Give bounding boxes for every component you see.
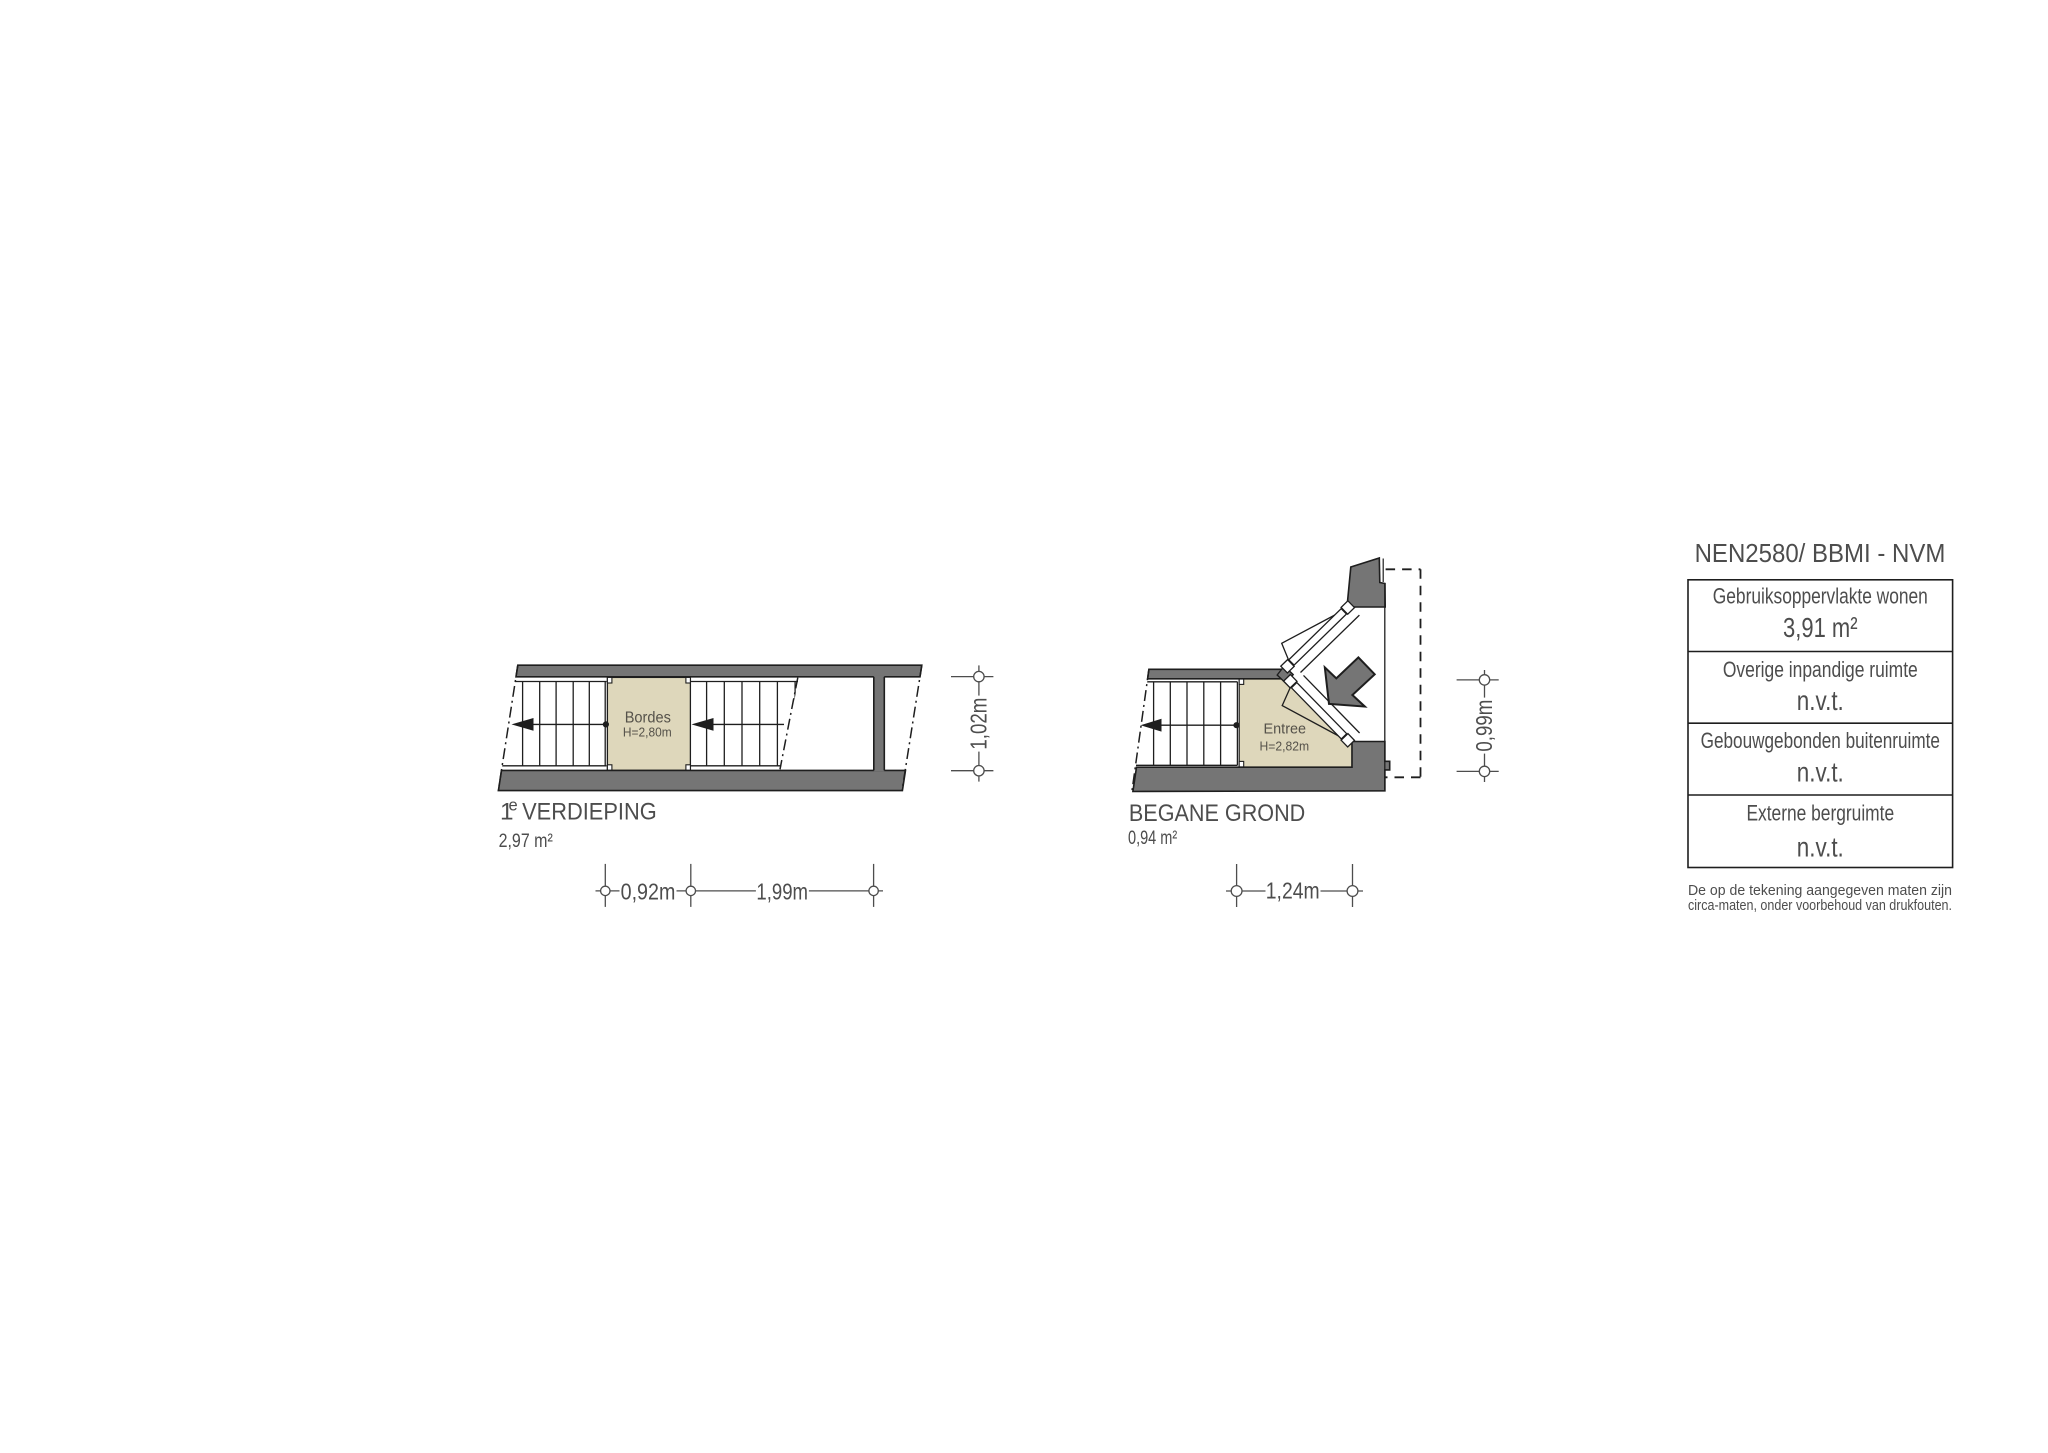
svg-text:0,99m: 0,99m bbox=[1471, 700, 1497, 752]
svg-text:H=2,80m: H=2,80m bbox=[623, 726, 672, 740]
svg-text:1,24m: 1,24m bbox=[1266, 878, 1320, 904]
svg-text:Gebruiksoppervlakte wonen: Gebruiksoppervlakte wonen bbox=[1713, 584, 1928, 609]
svg-text:n.v.t.: n.v.t. bbox=[1797, 685, 1844, 716]
svg-text:1,02m: 1,02m bbox=[965, 698, 991, 750]
svg-text:Entree: Entree bbox=[1264, 721, 1307, 738]
svg-text:3,91 m²: 3,91 m² bbox=[1783, 612, 1858, 643]
svg-text:VERDIEPING: VERDIEPING bbox=[522, 798, 657, 825]
svg-text:circa-maten, onder voorbehoud: circa-maten, onder voorbehoud van drukfo… bbox=[1688, 897, 1952, 914]
svg-text:NEN2580/ BBMI - NVM: NEN2580/ BBMI - NVM bbox=[1695, 538, 1946, 568]
svg-text:0,94 m²: 0,94 m² bbox=[1128, 827, 1178, 849]
svg-text:e: e bbox=[509, 797, 518, 815]
svg-text:Gebouwgebonden buitenruimte: Gebouwgebonden buitenruimte bbox=[1701, 728, 1940, 753]
svg-text:Externe bergruimte: Externe bergruimte bbox=[1746, 800, 1894, 825]
svg-text:BEGANE GROND: BEGANE GROND bbox=[1129, 800, 1305, 827]
svg-text:Bordes: Bordes bbox=[625, 709, 671, 726]
svg-text:n.v.t.: n.v.t. bbox=[1797, 832, 1844, 863]
svg-text:2,97 m²: 2,97 m² bbox=[499, 830, 554, 852]
svg-text:1,99m: 1,99m bbox=[756, 878, 808, 904]
svg-text:Overige inpandige ruimte: Overige inpandige ruimte bbox=[1723, 657, 1918, 682]
svg-text:n.v.t.: n.v.t. bbox=[1797, 757, 1844, 788]
svg-text:0,92m: 0,92m bbox=[621, 878, 676, 904]
svg-text:H=2,82m: H=2,82m bbox=[1260, 739, 1310, 753]
